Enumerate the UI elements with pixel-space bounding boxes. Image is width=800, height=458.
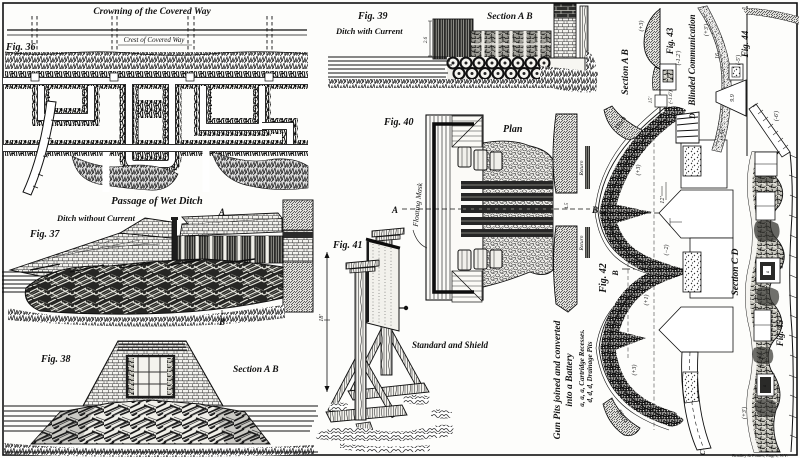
svg-text:(−2'): (−2') — [758, 354, 765, 366]
svg-text:Fig. 37: Fig. 37 — [29, 229, 60, 240]
svg-text:C: C — [699, 450, 707, 455]
svg-text:Fig. 43: Fig. 43 — [665, 27, 675, 55]
svg-text:d, d, d, Drainage Pits: d, d, d, Drainage Pits — [586, 341, 594, 402]
svg-text:d: d — [779, 265, 785, 268]
svg-text:(-1.2'): (-1.2') — [675, 51, 682, 66]
svg-text:4.5: 4.5 — [563, 202, 570, 209]
svg-text:(+3'): (+3') — [741, 407, 748, 419]
svg-text:18': 18' — [319, 314, 325, 322]
svg-text:Fig. 40: Fig. 40 — [383, 117, 413, 128]
svg-text:Fig. 39: Fig. 39 — [357, 11, 387, 22]
svg-text:Plan: Plan — [503, 124, 523, 135]
svg-text:16: 16 — [715, 53, 721, 59]
svg-text:Fig. 38: Fig. 38 — [40, 354, 70, 365]
svg-text:(−2): (−2) — [663, 244, 670, 255]
svg-text:35': 35' — [628, 296, 634, 305]
svg-text:(-6'): (-6') — [773, 111, 780, 121]
svg-text:Ditch without Current: Ditch without Current — [56, 213, 136, 223]
svg-text:into a Battery: into a Battery — [565, 353, 575, 407]
svg-text:Blinded Communication: Blinded Communication — [687, 14, 697, 106]
svg-text:(+3'): (+3') — [703, 24, 710, 36]
svg-text:Section A B: Section A B — [487, 12, 533, 22]
svg-text:D: D — [688, 113, 697, 120]
svg-text:Standard and Shield: Standard and Shield — [412, 340, 489, 350]
svg-text:(+5): (+5) — [719, 129, 726, 140]
svg-text:B: B — [611, 270, 620, 277]
svg-text:Section A B: Section A B — [621, 49, 631, 95]
svg-text:Fig. 44: Fig. 44 — [740, 30, 750, 58]
svg-text:A: A — [391, 205, 398, 215]
svg-text:Fig. 45: Fig. 45 — [775, 319, 785, 347]
svg-text:Gun Pits joined and converted: Gun Pits joined and converted — [553, 320, 563, 439]
svg-text:B: B — [591, 205, 598, 215]
svg-text:(+3): (+3) — [635, 164, 642, 175]
svg-text:(+3): (+3) — [631, 364, 638, 375]
svg-text:Return: Return — [579, 160, 585, 176]
svg-text:Section C D: Section C D — [731, 248, 741, 295]
svg-text:Crest of Covered Way: Crest of Covered Way — [124, 36, 186, 44]
svg-text:Return: Return — [579, 235, 585, 251]
svg-text:Fig. 36: Fig. 36 — [5, 42, 35, 53]
svg-text:Bradley & Poates, Engr's, N.Y.: Bradley & Poates, Engr's, N.Y. — [732, 453, 788, 458]
svg-text:Ditch with Current: Ditch with Current — [335, 26, 403, 36]
svg-text:Fig. 42: Fig. 42 — [598, 263, 609, 293]
svg-text:(-1.6'): (-1.6') — [667, 90, 674, 104]
svg-text:15': 15' — [648, 96, 654, 104]
svg-text:Section A B: Section A B — [233, 365, 279, 375]
svg-text:(+1): (+1) — [643, 294, 650, 305]
svg-text:Crowning of the Covered Way: Crowning of the Covered Way — [93, 7, 211, 17]
svg-text:Passage of Wet Ditch: Passage of Wet Ditch — [111, 196, 203, 207]
svg-text:12': 12' — [660, 196, 666, 204]
svg-text:B: B — [218, 317, 225, 327]
svg-text:a, a, a, Cartridge Recesses.: a, a, a, Cartridge Recesses. — [578, 329, 586, 407]
svg-text:9.9: 9.9 — [730, 94, 736, 102]
svg-text:(-5'): (-5') — [735, 55, 742, 65]
svg-text:(+3): (+3) — [638, 20, 645, 31]
svg-text:2.6: 2.6 — [424, 36, 429, 43]
svg-text:Fig. 41: Fig. 41 — [332, 240, 362, 251]
